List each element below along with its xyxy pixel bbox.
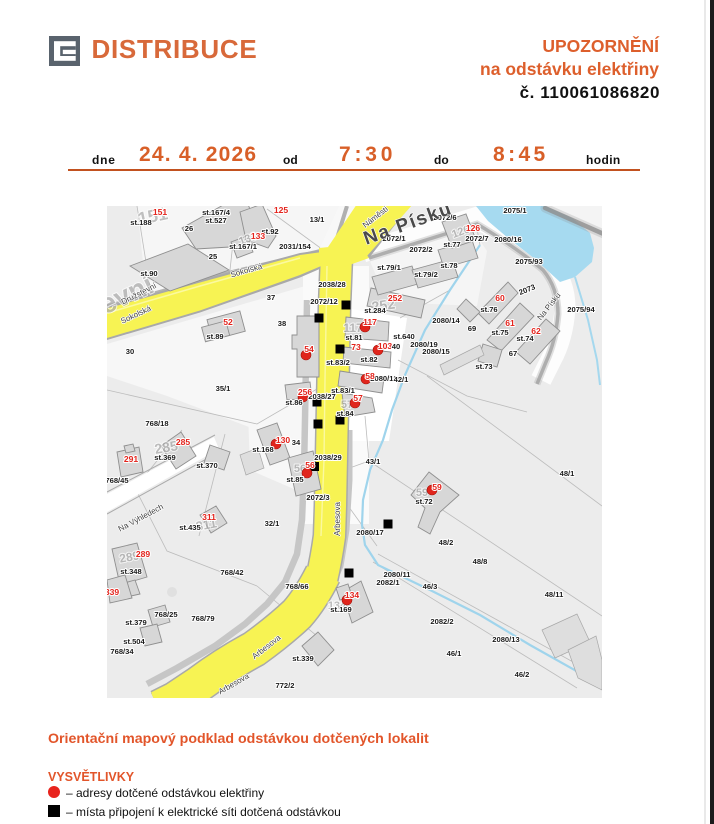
svg-text:46/2: 46/2: [515, 670, 530, 679]
svg-text:st.370: st.370: [196, 461, 218, 470]
svg-text:st.527: st.527: [205, 216, 227, 225]
svg-text:13/1: 13/1: [310, 215, 326, 224]
svg-text:48/1: 48/1: [560, 469, 576, 478]
svg-text:st.284: st.284: [364, 306, 386, 315]
svg-text:2075/93: 2075/93: [515, 257, 542, 266]
svg-text:2038/27: 2038/27: [308, 392, 335, 401]
svg-text:134: 134: [345, 590, 360, 600]
svg-text:Arbesova: Arbesova: [333, 502, 342, 536]
svg-text:2082/2: 2082/2: [430, 617, 453, 626]
svg-text:117: 117: [363, 317, 377, 327]
svg-text:289: 289: [136, 549, 151, 559]
svg-text:2080/17: 2080/17: [356, 528, 383, 537]
svg-text:103: 103: [378, 341, 393, 351]
svg-text:768/66: 768/66: [285, 582, 308, 591]
svg-text:st.75: st.75: [491, 328, 509, 337]
svg-text:48/11: 48/11: [545, 590, 564, 599]
svg-text:2082/1: 2082/1: [376, 578, 400, 587]
svg-text:st.167/1: st.167/1: [229, 242, 258, 251]
svg-text:768/25: 768/25: [154, 610, 178, 619]
svg-text:st.379: st.379: [125, 618, 147, 627]
svg-text:35/1: 35/1: [216, 384, 232, 393]
svg-text:2080/15: 2080/15: [422, 347, 450, 356]
svg-text:2075/1: 2075/1: [503, 206, 527, 215]
svg-text:58: 58: [365, 371, 375, 381]
svg-text:2038/28: 2038/28: [318, 280, 345, 289]
svg-text:st.84: st.84: [336, 409, 354, 418]
svg-text:252: 252: [388, 293, 403, 303]
svg-text:st.435: st.435: [179, 523, 201, 532]
svg-text:st.79/2: st.79/2: [414, 270, 438, 279]
svg-text:st.188: st.188: [130, 218, 152, 227]
svg-text:32/1: 32/1: [265, 519, 281, 528]
svg-text:772/2: 772/2: [275, 681, 294, 690]
svg-text:42/1: 42/1: [394, 375, 410, 384]
svg-text:st.72: st.72: [415, 497, 432, 506]
svg-text:56: 56: [305, 460, 315, 470]
svg-text:st.90: st.90: [140, 269, 157, 278]
svg-text:st.77: st.77: [443, 240, 460, 249]
svg-text:38: 38: [278, 319, 286, 328]
svg-text:285: 285: [176, 437, 191, 447]
svg-text:st.81: st.81: [345, 333, 363, 342]
svg-text:st.369: st.369: [154, 453, 176, 462]
svg-text:st.348: st.348: [120, 567, 142, 576]
svg-text:25: 25: [209, 252, 218, 261]
svg-text:311: 311: [202, 512, 216, 522]
svg-text:st.82: st.82: [360, 355, 377, 364]
svg-text:st.86: st.86: [285, 398, 302, 407]
svg-text:st.339: st.339: [292, 654, 314, 663]
svg-text:st.76: st.76: [480, 305, 497, 314]
svg-text:125: 125: [274, 206, 289, 215]
svg-text:133: 133: [251, 231, 266, 241]
svg-text:46/1: 46/1: [447, 649, 463, 658]
svg-text:2072/2: 2072/2: [409, 245, 432, 254]
svg-text:151: 151: [153, 207, 168, 217]
svg-text:73: 73: [351, 342, 361, 352]
svg-text:54: 54: [304, 344, 314, 354]
svg-text:291: 291: [124, 454, 139, 464]
svg-text:40: 40: [392, 342, 400, 351]
svg-text:st.169: st.169: [330, 605, 352, 614]
svg-text:st.89: st.89: [206, 332, 223, 341]
svg-text:2080/16: 2080/16: [494, 235, 521, 244]
svg-text:2080/14: 2080/14: [432, 316, 460, 325]
svg-text:st.79/1: st.79/1: [377, 263, 401, 272]
svg-text:46/3: 46/3: [423, 582, 438, 591]
svg-text:67: 67: [509, 349, 517, 358]
svg-text:59: 59: [432, 482, 442, 492]
svg-text:2072/3: 2072/3: [306, 493, 329, 502]
svg-text:st.73: st.73: [475, 362, 492, 371]
svg-text:st.504: st.504: [123, 637, 145, 646]
svg-text:st.168: st.168: [252, 445, 274, 454]
svg-text:768/42: 768/42: [220, 568, 243, 577]
svg-text:2072/7: 2072/7: [465, 234, 488, 243]
svg-text:2031/154: 2031/154: [279, 242, 311, 251]
svg-text:2075/94: 2075/94: [567, 305, 595, 314]
svg-text:60: 60: [495, 293, 505, 303]
svg-text:2080/13: 2080/13: [492, 635, 519, 644]
svg-text:30: 30: [126, 347, 134, 356]
svg-text:126: 126: [466, 223, 481, 233]
svg-text:34: 34: [292, 438, 301, 447]
svg-text:768/18: 768/18: [145, 419, 168, 428]
svg-text:st.78: st.78: [440, 261, 457, 270]
svg-text:48/8: 48/8: [473, 557, 488, 566]
svg-text:st.85: st.85: [286, 475, 304, 484]
svg-text:768/34: 768/34: [110, 647, 134, 656]
svg-text:768/45: 768/45: [107, 476, 129, 485]
svg-text:768/79: 768/79: [191, 614, 214, 623]
svg-text:st.83/2: st.83/2: [326, 358, 350, 367]
svg-text:61: 61: [505, 318, 515, 328]
svg-text:339: 339: [107, 587, 119, 597]
svg-text:2072/12: 2072/12: [310, 297, 337, 306]
svg-text:57: 57: [353, 393, 363, 403]
svg-text:2038/29: 2038/29: [314, 453, 341, 462]
svg-text:130: 130: [276, 435, 291, 445]
svg-text:62: 62: [531, 326, 541, 336]
svg-text:37: 37: [267, 293, 275, 302]
svg-text:43/1: 43/1: [366, 457, 382, 466]
svg-text:26: 26: [185, 224, 193, 233]
svg-text:48/2: 48/2: [439, 538, 454, 547]
svg-text:52: 52: [223, 317, 233, 327]
svg-text:256: 256: [298, 387, 313, 397]
svg-text:69: 69: [468, 324, 476, 333]
